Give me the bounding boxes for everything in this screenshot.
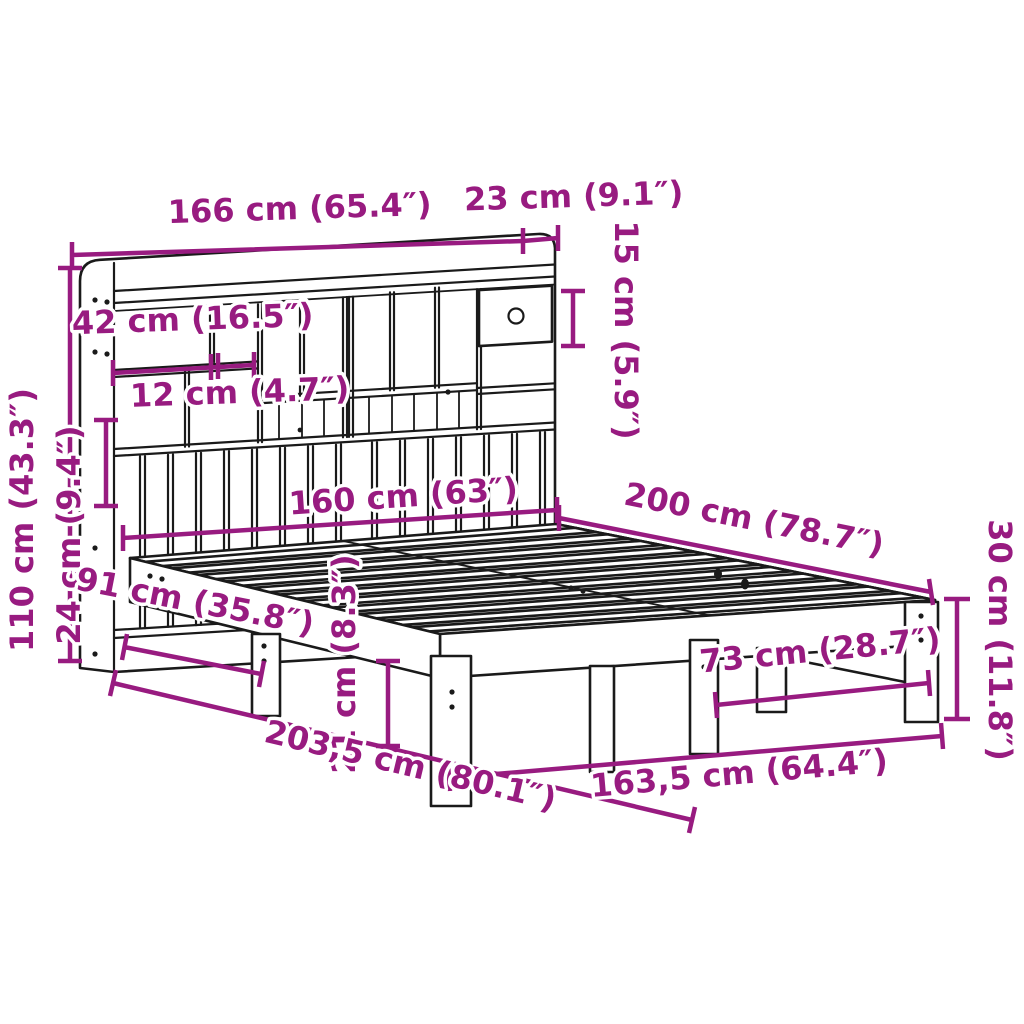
headboard-drawer (479, 286, 552, 346)
dim-label-slat-panel-height: 24 cm (9.4″) (50, 425, 88, 644)
dim-label-compartment-height: 15 cm (5.9″) (607, 220, 645, 439)
leg-far-mid (590, 666, 614, 772)
dim-line-frame-height (944, 599, 970, 719)
dim-label-frame-length: 163,5 cm (64.4″) (589, 741, 889, 805)
bed-diagram-canvas: 166 cm (65.4″) 23 cm (9.1″) 15 cm (5.9″)… (0, 0, 1024, 1024)
dim-label-frame-height: 30 cm (11.8″) (981, 519, 1019, 761)
dim-line-compartment-height (561, 291, 585, 346)
dim-label-headboard-width: 166 cm (65.4″) (167, 185, 432, 231)
dim-line-underbed-clearance (376, 661, 400, 746)
dimension-diagram: 166 cm (65.4″) 23 cm (9.1″) 15 cm (5.9″)… (0, 0, 1024, 1024)
dim-label-total-length: 203,5 cm (80.1″) (261, 712, 560, 818)
dim-label-shelf-gap: 12 cm (4.7″) (129, 369, 350, 415)
rail-peg (714, 569, 722, 580)
rail-peg (741, 579, 749, 590)
dim-label-headboard-height: 110 cm (43.3″) (3, 388, 41, 652)
dim-label-headboard-depth: 23 cm (9.1″) (463, 174, 683, 219)
